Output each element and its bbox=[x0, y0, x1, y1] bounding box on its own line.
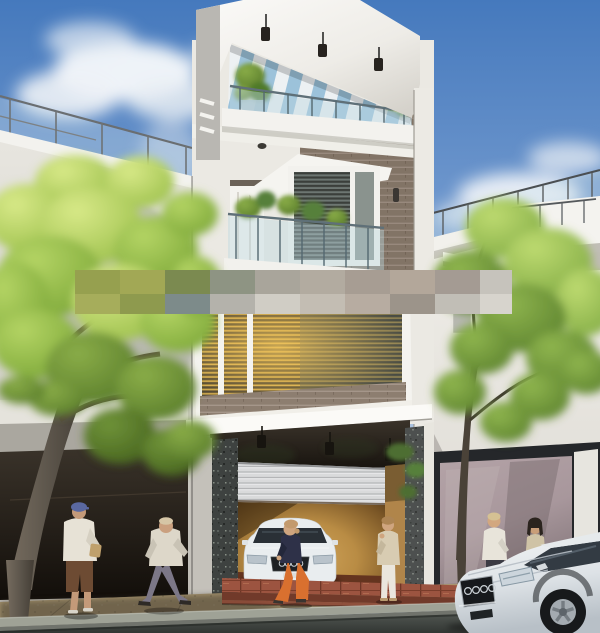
cap-brim bbox=[79, 507, 89, 510]
hand bbox=[380, 534, 385, 539]
mosaic-block bbox=[480, 294, 512, 314]
potted-plant bbox=[277, 195, 301, 215]
leg bbox=[84, 590, 91, 609]
potted-plant bbox=[256, 191, 276, 209]
mosaic-block bbox=[75, 294, 120, 314]
right-jamb bbox=[424, 422, 434, 602]
pendant-lamp bbox=[374, 58, 383, 71]
headlight bbox=[247, 555, 267, 564]
mosaic-block bbox=[165, 270, 210, 294]
pendant-lamp bbox=[325, 442, 334, 455]
vine-leaves bbox=[399, 485, 417, 499]
pendant-lamp bbox=[261, 27, 270, 41]
headlight bbox=[313, 555, 333, 564]
mosaic-block bbox=[345, 294, 390, 314]
hair bbox=[284, 520, 298, 529]
hair bbox=[159, 517, 173, 525]
roof-left-fascia bbox=[196, 5, 220, 160]
hub bbox=[559, 608, 567, 616]
mosaic-block bbox=[480, 270, 512, 294]
cloud bbox=[45, 22, 135, 58]
shoe bbox=[380, 598, 388, 601]
mosaic-block bbox=[210, 294, 255, 314]
mosaic-block bbox=[390, 270, 435, 294]
vine-leaves bbox=[405, 462, 427, 478]
downlight bbox=[258, 143, 267, 149]
front-wheel bbox=[540, 589, 586, 633]
hand bbox=[277, 556, 282, 561]
mullion bbox=[218, 311, 224, 402]
person-shadow bbox=[144, 608, 184, 615]
foliage-clump bbox=[450, 322, 514, 374]
mosaic-block bbox=[390, 294, 435, 314]
mosaic-block bbox=[120, 270, 165, 294]
person-shadow bbox=[280, 603, 312, 609]
mosaic-block bbox=[300, 270, 345, 294]
mosaic-block bbox=[255, 294, 300, 314]
vine-leaves bbox=[386, 443, 414, 461]
foliage-clump bbox=[0, 376, 46, 404]
foliage-clump bbox=[480, 402, 532, 442]
mosaic-block bbox=[300, 294, 345, 314]
mosaic-block bbox=[435, 270, 480, 294]
potted-plant bbox=[301, 201, 325, 221]
sandal bbox=[83, 608, 93, 612]
hair-bun bbox=[294, 528, 299, 533]
watermark-pixelated-band bbox=[75, 270, 512, 314]
shoe bbox=[296, 599, 306, 603]
hair bbox=[488, 513, 501, 521]
foliage-clump bbox=[434, 370, 486, 414]
person-shadow bbox=[64, 613, 98, 620]
pendant-lamp bbox=[257, 435, 266, 448]
shoe bbox=[389, 598, 397, 601]
mullion bbox=[247, 309, 253, 399]
mosaic-block bbox=[75, 270, 120, 294]
architectural-render bbox=[0, 0, 600, 633]
mosaic-block bbox=[120, 294, 165, 314]
mosaic-block bbox=[165, 294, 210, 314]
wall-sconce bbox=[393, 188, 399, 202]
side-mirror bbox=[332, 540, 338, 545]
side-mirror bbox=[242, 540, 248, 545]
sandal bbox=[68, 610, 78, 614]
foliage-clump bbox=[164, 420, 216, 460]
bag bbox=[89, 543, 102, 557]
mosaic-block bbox=[435, 294, 480, 314]
render-canvas bbox=[0, 0, 600, 633]
pendant-lamp bbox=[318, 44, 327, 57]
mosaic-block bbox=[345, 270, 390, 294]
mosaic-block bbox=[255, 270, 300, 294]
hair bbox=[382, 516, 395, 524]
mosaic-block bbox=[210, 270, 255, 294]
foliage-clump bbox=[162, 192, 218, 236]
